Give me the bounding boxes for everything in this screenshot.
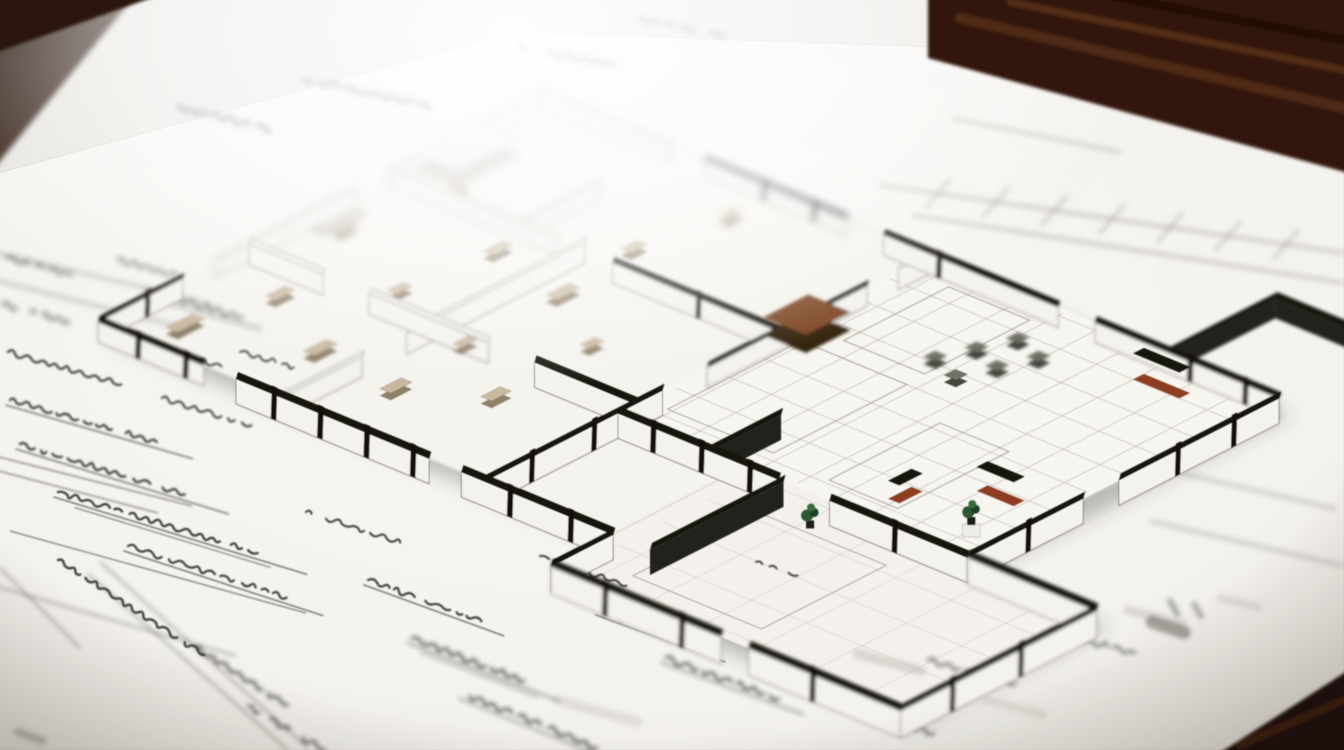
scene-svg xyxy=(0,0,1344,750)
vignette-overlay xyxy=(0,0,1344,750)
blueprint-photo xyxy=(0,0,1344,750)
